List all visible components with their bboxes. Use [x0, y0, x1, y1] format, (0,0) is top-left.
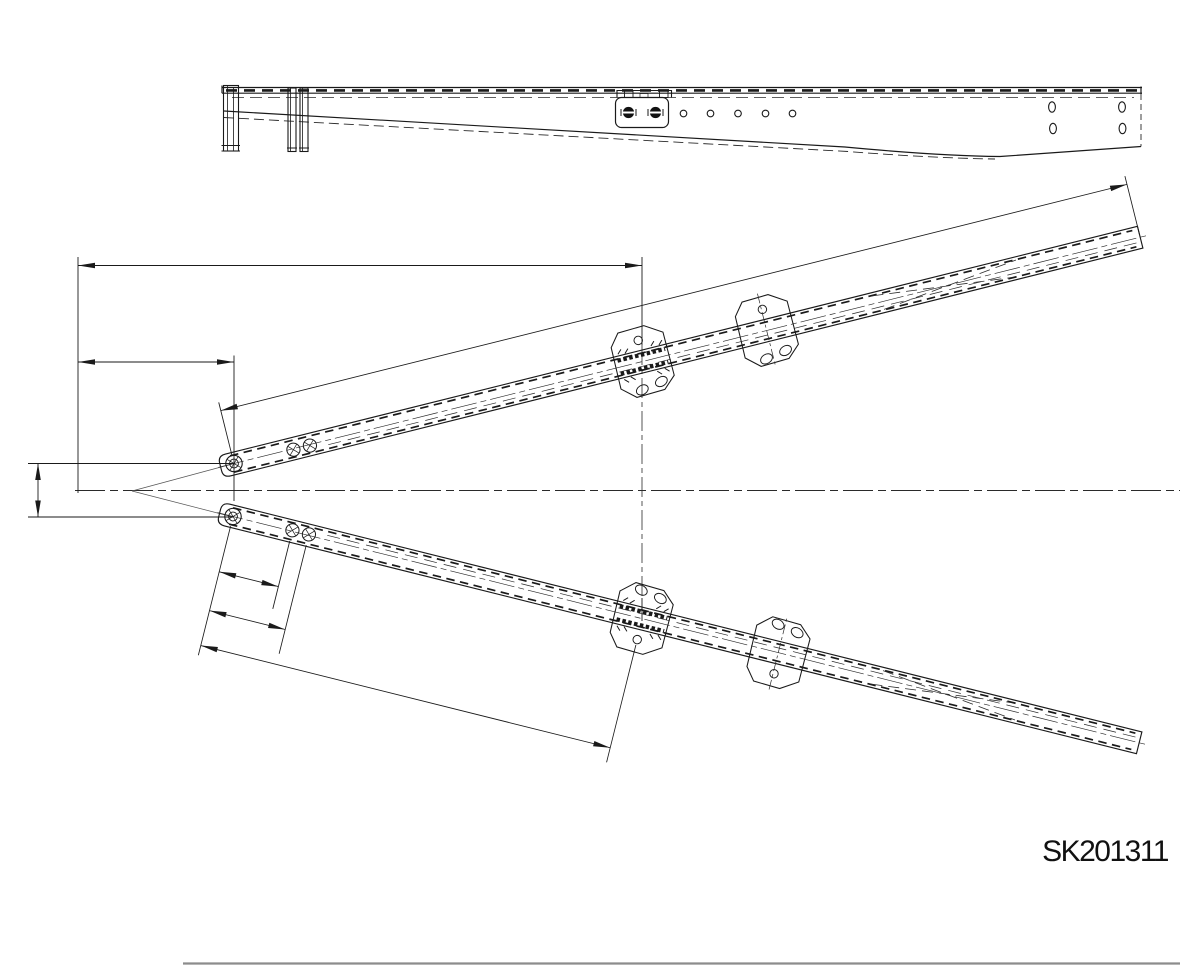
lower-arm: [182, 476, 1158, 889]
dimension-upper-arm-length: [219, 176, 1140, 460]
upper-arm-edge-dashes: [234, 247, 1136, 472]
side-slotted-holes: [1049, 102, 1126, 134]
dimension-lower-arm-holes: [197, 526, 640, 762]
side-bottom-edge: [224, 111, 1141, 157]
upper-arm: [203, 174, 1159, 505]
bolt-head-icon: [648, 107, 663, 118]
technical-drawing-canvas: SK201311: [0, 0, 1180, 967]
dimension-tip-offset: [35, 464, 41, 518]
upper-arm-hidden-line: [328, 243, 1137, 445]
side-bolt-plate: [616, 91, 672, 128]
lower-arm-bolt-icon: [284, 522, 300, 538]
cad-drawing-sheet: SK201311: [0, 0, 1180, 967]
upper-arm-edge-dashes: [230, 231, 1132, 456]
lower-arm-edge-dashes: [233, 508, 1135, 733]
side-view: [222, 86, 1143, 160]
upper-arm-centerline: [218, 235, 1149, 468]
part-number-label: SK201311: [1042, 835, 1169, 868]
lower-arm-centerline: [217, 513, 1148, 746]
lower-arm-edge-dashes: [229, 524, 1131, 749]
upper-clamp-plate-2: [731, 287, 803, 374]
side-bottom-hidden-edge: [224, 118, 995, 160]
side-adjustment-holes: [680, 110, 796, 117]
lower-clamp-plate-2: [742, 609, 814, 696]
dimension-apex-to-tip: [78, 359, 234, 364]
bolt-head-icon: [621, 107, 636, 118]
dimension-overall-to-clamp: [78, 263, 642, 268]
apex-line-lower: [132, 491, 233, 517]
lower-clamp-plate-1: [606, 579, 676, 659]
plan-view: [28, 174, 1180, 889]
upper-arm-bolt-icon: [285, 442, 301, 458]
